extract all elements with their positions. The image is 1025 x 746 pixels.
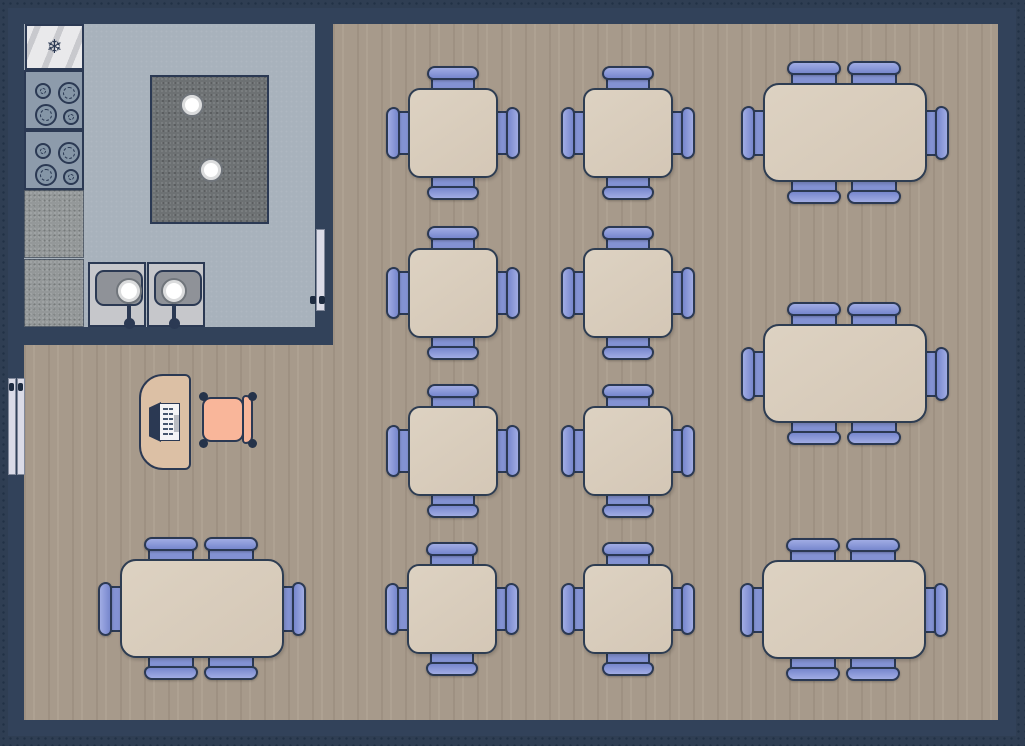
dining-table-square[interactable] — [583, 248, 673, 338]
dining-table-rect[interactable] — [762, 560, 926, 659]
dining-table-square[interactable] — [583, 406, 673, 496]
table-top — [407, 564, 497, 654]
chair-back — [787, 302, 841, 316]
burner-icon — [35, 83, 51, 99]
chair-back — [144, 537, 198, 551]
chair-back — [681, 425, 695, 477]
island-bowl — [180, 93, 204, 117]
chair-back — [386, 107, 400, 159]
cash-register[interactable] — [149, 401, 180, 443]
chair-back — [144, 666, 198, 680]
burner-icon — [35, 164, 57, 186]
burner-icon — [63, 169, 79, 185]
burner-icon — [63, 109, 79, 125]
chair-back — [386, 425, 400, 477]
chair-back — [787, 190, 841, 204]
kitchen-island[interactable] — [150, 75, 269, 224]
chair-back — [561, 267, 575, 319]
chair-back — [506, 425, 520, 477]
island-bowl — [199, 158, 223, 182]
chair-back — [427, 384, 479, 398]
chair-back — [847, 302, 901, 316]
chair-back — [426, 542, 478, 556]
register-keys — [169, 408, 173, 437]
dining-table-square[interactable] — [408, 248, 498, 338]
chair-back — [787, 431, 841, 445]
table-top — [120, 559, 284, 658]
stove[interactable] — [24, 70, 84, 130]
table-top — [408, 88, 498, 178]
dining-table-square[interactable] — [408, 406, 498, 496]
dining-table-rect[interactable] — [120, 559, 284, 658]
dining-table-rect[interactable] — [763, 83, 927, 182]
chair-back — [386, 267, 400, 319]
table-top — [583, 248, 673, 338]
chair-back — [385, 583, 399, 635]
chair-back — [847, 61, 901, 75]
chair-back — [426, 662, 478, 676]
chair-back — [934, 583, 948, 637]
chair-back — [787, 61, 841, 75]
chair-back — [741, 106, 755, 160]
chair-back — [292, 582, 306, 636]
snowflake-icon: ❄ — [47, 38, 63, 57]
chair-post-icon — [199, 439, 208, 448]
burner-icon — [58, 142, 80, 164]
door-handle-icon — [310, 296, 316, 304]
chair-back — [505, 583, 519, 635]
sink-unit[interactable] — [147, 262, 205, 327]
burner-icon — [35, 143, 51, 159]
floorplan-canvas: ❄ — [0, 0, 1025, 746]
chair-back — [602, 186, 654, 200]
dining-table-square[interactable] — [583, 88, 673, 178]
door-handle-icon — [9, 383, 14, 391]
chair-back — [741, 347, 755, 401]
dining-table-rect[interactable] — [763, 324, 927, 423]
chair-back — [847, 431, 901, 445]
dining-table-square[interactable] — [407, 564, 497, 654]
chair-back — [681, 267, 695, 319]
chair-back — [427, 504, 479, 518]
entry-door-panel[interactable] — [17, 378, 25, 475]
table-top — [763, 324, 927, 423]
chair-back — [602, 226, 654, 240]
counter[interactable] — [24, 259, 84, 327]
chair-back — [846, 667, 900, 681]
burner-icon — [35, 104, 57, 126]
chair-back — [427, 346, 479, 360]
host-chair[interactable] — [198, 391, 258, 449]
chair-back — [602, 542, 654, 556]
chair-back — [847, 190, 901, 204]
register-keys — [163, 408, 168, 437]
sink-unit[interactable] — [88, 262, 146, 327]
table-top — [763, 83, 927, 182]
sink-bowl — [161, 278, 187, 304]
table-top — [583, 88, 673, 178]
door-handle-icon — [319, 296, 325, 304]
table-top — [583, 564, 673, 654]
door-handle-icon — [18, 383, 23, 391]
dining-table-square[interactable] — [408, 88, 498, 178]
chair-back — [602, 384, 654, 398]
chair-post-icon — [199, 392, 208, 401]
dining-table-square[interactable] — [583, 564, 673, 654]
chair-post-icon — [248, 439, 257, 448]
chair-back — [98, 582, 112, 636]
table-top — [408, 406, 498, 496]
table-top — [408, 248, 498, 338]
chair-back — [602, 662, 654, 676]
chair-back — [204, 666, 258, 680]
host-chair-cushion — [202, 397, 244, 442]
chair-back — [846, 538, 900, 552]
chair-back — [427, 186, 479, 200]
host-chair-back — [242, 395, 253, 444]
chair-back — [935, 347, 949, 401]
chair-back — [681, 107, 695, 159]
register-key — [174, 415, 179, 432]
chair-back — [602, 66, 654, 80]
sink-bowl — [116, 278, 142, 304]
stove[interactable] — [24, 130, 84, 190]
counter[interactable] — [24, 190, 84, 258]
faucet-icon — [124, 318, 135, 329]
chair-back — [786, 667, 840, 681]
chair-post-icon — [248, 392, 257, 401]
chair-back — [561, 107, 575, 159]
chair-back — [602, 346, 654, 360]
chair-back — [740, 583, 754, 637]
refrigerator[interactable]: ❄ — [25, 24, 84, 70]
chair-back — [427, 226, 479, 240]
chair-back — [561, 583, 575, 635]
chair-back — [602, 504, 654, 518]
table-top — [762, 560, 926, 659]
register-body — [159, 403, 180, 441]
entry-door-panel[interactable] — [8, 378, 16, 475]
chair-back — [204, 537, 258, 551]
table-top — [583, 406, 673, 496]
chair-back — [786, 538, 840, 552]
chair-back — [561, 425, 575, 477]
chair-back — [427, 66, 479, 80]
chair-back — [681, 583, 695, 635]
burner-icon — [58, 82, 80, 104]
chair-back — [935, 106, 949, 160]
faucet-icon — [169, 318, 180, 329]
chair-back — [506, 267, 520, 319]
chair-back — [506, 107, 520, 159]
